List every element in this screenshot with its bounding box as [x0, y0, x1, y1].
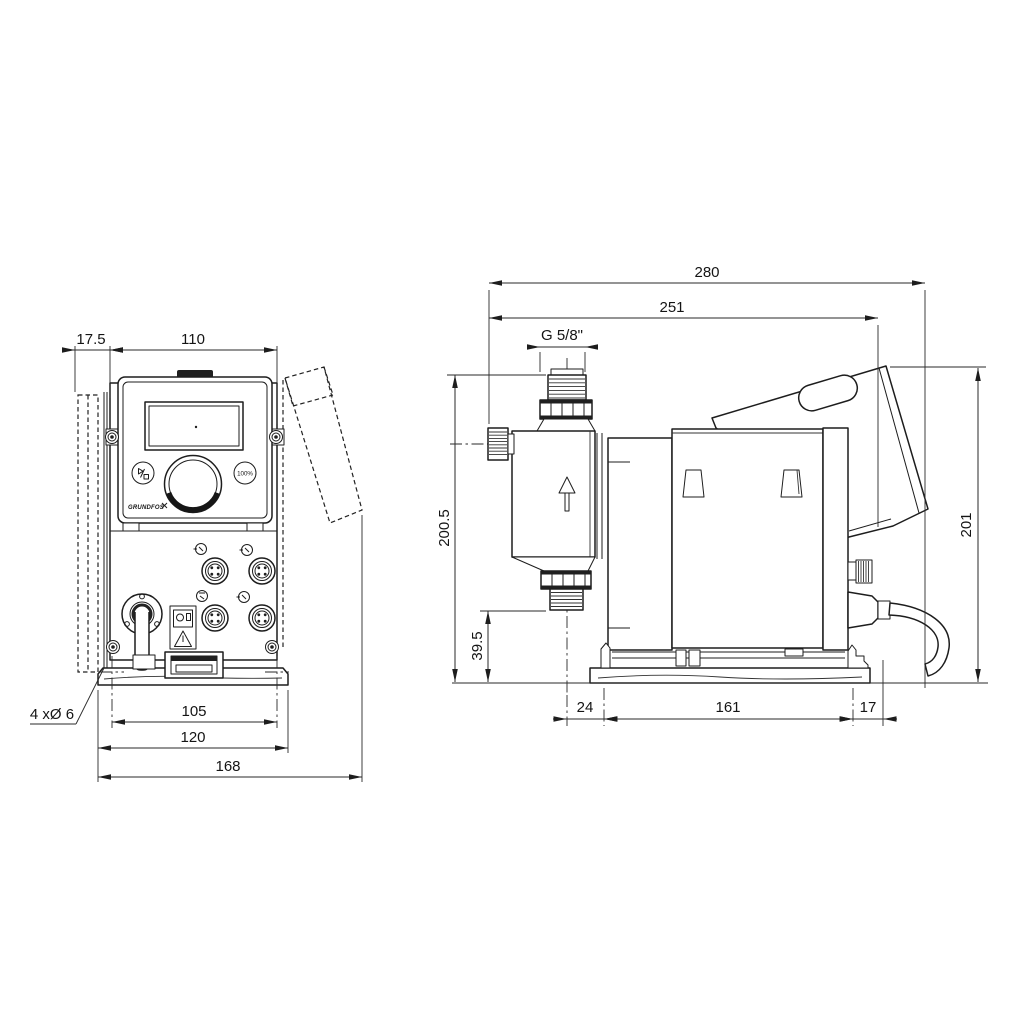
control-cube-hidden-outline — [283, 367, 362, 648]
dim-251-label: 251 — [659, 299, 684, 316]
m12-connector — [202, 605, 228, 631]
dim-24-label: 24 — [577, 699, 594, 716]
dim-200-5-label: 200.5 — [436, 509, 453, 547]
grundfos-logo: GRUNDFOS — [128, 503, 167, 511]
dim-201-label: 201 — [958, 512, 975, 537]
body-screw-right — [266, 641, 279, 654]
body-screw-left — [107, 641, 120, 654]
foot-rear — [848, 645, 868, 668]
wall-bracket-hidden-outline — [78, 392, 107, 672]
power-cable — [889, 603, 949, 676]
dim-17-5-label: 17.5 — [76, 331, 105, 348]
dim-39-5-label: 39.5 — [469, 631, 486, 660]
motor-housing — [672, 428, 848, 650]
top-union-nut — [540, 400, 592, 419]
m12-connector — [249, 605, 275, 631]
pump-dimensional-drawing: 100% GRUNDFOS — [0, 0, 1024, 1024]
dim-280-label: 280 — [694, 264, 719, 281]
holes-note-label: 4 xØ 6 — [30, 706, 74, 723]
back-cover — [823, 428, 848, 650]
bottom-union-nut — [541, 571, 591, 589]
start-stop-button — [132, 462, 154, 484]
dim-120-label: 120 — [180, 729, 205, 746]
display — [145, 402, 243, 450]
thread-size-label: G 5/8" — [541, 327, 583, 344]
dim-161-label: 161 — [715, 699, 740, 716]
button-100-percent: 100% — [234, 462, 256, 484]
vent-knob — [488, 428, 514, 460]
logo-text: GRUNDFOS — [128, 505, 164, 511]
control-panel: 100% GRUNDFOS — [106, 370, 285, 523]
panel-screw-right — [270, 431, 283, 444]
warning-label — [170, 606, 196, 649]
button-100-label: 100% — [237, 471, 253, 478]
click-wheel — [165, 456, 222, 513]
panel-screw-left — [106, 431, 119, 444]
dimensional-drawing-sheet: 100% GRUNDFOS — [0, 0, 1024, 1024]
m12-connector — [202, 558, 228, 584]
dim-168-label: 168 — [215, 758, 240, 775]
dim-17-label: 17 — [860, 699, 877, 716]
front-view: 100% GRUNDFOS — [30, 331, 362, 782]
m12-connector — [249, 558, 275, 584]
cable-gland-side — [848, 592, 878, 628]
dim-110-label: 110 — [181, 331, 205, 348]
dim-105-label: 105 — [181, 703, 206, 720]
pump-front-section — [608, 438, 672, 650]
side-view: 280 251 G 5/8" 200.5 39.5 201 — [436, 264, 988, 726]
foot-front — [601, 643, 610, 668]
head-body — [512, 431, 595, 557]
